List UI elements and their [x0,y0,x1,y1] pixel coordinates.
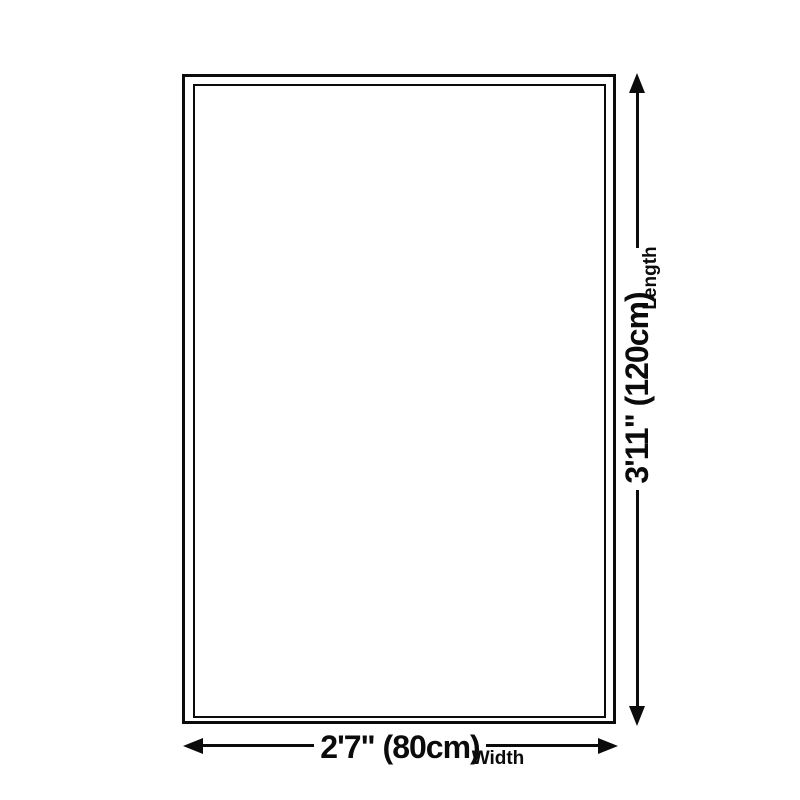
width-dimension-line-left [200,744,314,747]
product-outline-inner [193,84,606,718]
length-dimension-value: 3'11" (120cm) [619,288,655,488]
arrowhead-up-icon [629,73,645,93]
arrowhead-down-icon [629,706,645,726]
dimension-diagram-page: { "page": { "background_color": "#ffffff… [0,0,800,800]
length-dimension-line-top [636,91,639,248]
arrowhead-right-icon [598,738,618,754]
width-dimension-line-right [486,744,600,747]
length-dimension-line-bottom [636,490,639,706]
width-dimension-label: Width [463,749,533,769]
